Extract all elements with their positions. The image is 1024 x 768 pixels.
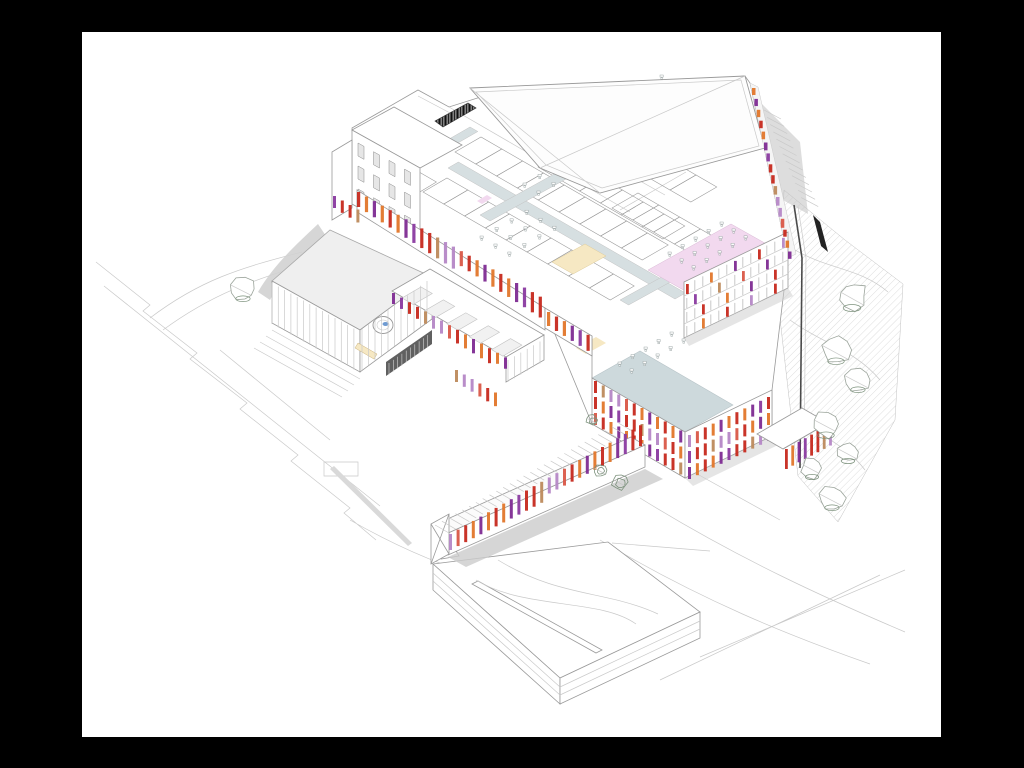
facade-stripe: [718, 283, 721, 293]
chair: [682, 247, 684, 249]
facade-stripe: [449, 534, 452, 550]
facade-mullion: [694, 308, 695, 318]
facade-stripe: [688, 467, 691, 479]
chair: [496, 230, 498, 232]
chair: [657, 357, 659, 359]
facade-stripe: [726, 293, 729, 303]
facade-stripe: [593, 451, 596, 470]
facade-stripe: [664, 422, 667, 434]
desk: [680, 259, 683, 261]
chair: [524, 246, 526, 248]
chair: [693, 269, 695, 271]
desk: [682, 339, 685, 341]
chair: [681, 262, 683, 264]
chair: [525, 230, 527, 232]
facade-stripe: [491, 269, 494, 286]
facade-stripe: [400, 298, 403, 309]
facade-stripe: [456, 330, 459, 344]
desk: [618, 362, 621, 364]
facade-stripe: [672, 458, 675, 470]
facade-stripe: [463, 375, 466, 387]
facade-stripe: [381, 206, 384, 223]
facade-stripe: [472, 521, 475, 538]
facade-stripe: [735, 428, 738, 440]
facade-stripe: [704, 459, 707, 471]
facade-mullion: [694, 322, 695, 332]
facade-stripe: [769, 164, 773, 172]
facade-stripe: [563, 469, 566, 486]
desk: [657, 340, 660, 342]
facade-stripe: [758, 249, 761, 259]
chair: [540, 221, 542, 223]
chair: [511, 222, 513, 224]
facade-stripe: [720, 452, 723, 464]
facade-stripe: [720, 436, 723, 448]
facade-stripe: [444, 242, 447, 263]
chair: [695, 240, 697, 242]
chair: [619, 365, 621, 367]
facade-stripe: [734, 261, 737, 271]
facade-stripe: [648, 413, 651, 425]
facade-stripe: [648, 429, 651, 441]
desk: [670, 332, 673, 334]
chair: [554, 229, 556, 231]
facade-stripe: [656, 433, 659, 445]
desk: [694, 237, 697, 239]
facade-stripe: [751, 405, 754, 417]
facade-stripe: [712, 440, 715, 452]
facade-mullion: [686, 312, 687, 322]
facade-stripe: [783, 230, 787, 237]
facade-stripe: [533, 486, 536, 507]
facade-stripe: [479, 517, 482, 535]
facade-stripe: [764, 143, 768, 151]
facade-mullion: [702, 290, 703, 300]
facade-stripe: [349, 205, 352, 218]
desk: [523, 183, 526, 185]
facade-stripe: [602, 402, 605, 414]
desk: [732, 229, 735, 231]
facade-stripe: [610, 406, 613, 418]
facade-stripe: [743, 408, 746, 420]
facade-stripe: [776, 197, 780, 206]
facade-stripe: [412, 224, 415, 243]
facade-stripe: [579, 330, 582, 346]
facade-stripe: [788, 252, 792, 259]
facade-stripe: [785, 449, 788, 469]
facade-stripe: [356, 210, 359, 223]
chair: [719, 254, 721, 256]
facade-stripe: [726, 307, 729, 317]
desk: [660, 75, 663, 77]
facade-stripe: [686, 284, 689, 294]
drawing-sheet: [0, 0, 1024, 768]
facade-stripe: [735, 444, 738, 456]
chair: [526, 213, 528, 215]
facade-stripe: [460, 251, 463, 266]
facade-stripe: [774, 270, 777, 280]
facade-stripe: [679, 463, 682, 475]
desk: [706, 244, 709, 246]
facade-stripe: [507, 278, 510, 297]
chair: [720, 239, 722, 241]
desk: [643, 361, 646, 363]
facade-stripe: [389, 210, 392, 227]
facade-mullion: [782, 252, 783, 262]
facade-stripe: [786, 241, 790, 248]
chair: [706, 261, 708, 263]
facade-stripe: [436, 238, 439, 259]
facade-stripe: [743, 440, 746, 452]
facade-stripe: [616, 438, 619, 458]
facade-stripe: [609, 443, 612, 462]
facade-stripe: [468, 256, 471, 272]
facade-stripe: [333, 196, 336, 208]
desk: [681, 245, 684, 247]
facade-stripe: [751, 437, 754, 449]
architectural-axonometric-drawing: [0, 0, 1024, 768]
facade-stripe: [743, 424, 746, 436]
facade-stripe: [457, 530, 460, 546]
facade-stripe: [555, 317, 558, 331]
chair: [708, 232, 710, 234]
desk: [552, 182, 555, 184]
facade-mullion: [750, 253, 751, 263]
facade-stripe: [767, 413, 770, 425]
facade-mullion: [750, 267, 751, 277]
facade-mullion: [686, 326, 687, 336]
facade-stripe: [617, 395, 620, 407]
facade-stripe: [781, 219, 785, 228]
facade-stripe: [440, 321, 443, 334]
chair: [670, 349, 672, 351]
facade-stripe: [502, 504, 505, 523]
facade-stripe: [452, 247, 455, 269]
chair: [694, 254, 696, 256]
desk: [510, 219, 513, 221]
chair: [733, 232, 735, 234]
facade-stripe: [774, 284, 777, 294]
facade-stripe: [578, 460, 581, 478]
facade-stripe: [672, 426, 675, 438]
desk: [508, 252, 511, 254]
facade-stripe: [610, 390, 613, 402]
facade-stripe: [510, 499, 513, 518]
facade-stripe: [499, 274, 502, 292]
facade-stripe: [416, 307, 419, 319]
chair: [631, 372, 633, 374]
facade-stripe: [771, 175, 775, 183]
facade-stripe: [420, 228, 423, 248]
facade-stripe: [617, 427, 620, 439]
facade-stripe: [587, 335, 590, 351]
facade-mullion: [686, 298, 687, 308]
desk: [719, 236, 722, 238]
facade-stripe: [798, 442, 801, 463]
facade-stripe: [694, 294, 697, 304]
facade-stripe: [464, 525, 467, 542]
facade-stripe: [428, 233, 431, 253]
facade-stripe: [759, 401, 762, 413]
desk: [553, 226, 556, 228]
chair: [661, 78, 663, 80]
desk: [509, 235, 512, 237]
facade-mullion: [742, 257, 743, 267]
facade-mullion: [774, 256, 775, 266]
chair: [509, 255, 511, 257]
facade-stripe: [754, 99, 758, 106]
facade-stripe: [483, 265, 486, 282]
facade-mullion: [758, 277, 759, 287]
facade-stripe: [539, 297, 542, 318]
facade-stripe: [617, 411, 620, 423]
facade-mullion: [734, 289, 735, 299]
facade-stripe: [757, 110, 761, 117]
desk: [693, 251, 696, 253]
desk: [731, 243, 734, 245]
facade-stripe: [408, 302, 411, 314]
desk: [744, 236, 747, 238]
facade-stripe: [664, 438, 667, 450]
facade-stripe: [710, 272, 713, 282]
facade-stripe: [704, 427, 707, 439]
facade-stripe: [712, 456, 715, 468]
facade-stripe: [472, 339, 475, 353]
chair: [745, 239, 747, 241]
facade-stripe: [720, 420, 723, 432]
facade-stripe: [365, 197, 368, 213]
facade-stripe: [602, 386, 605, 398]
desk: [538, 174, 541, 176]
facade-stripe: [563, 321, 566, 336]
facade-stripe: [778, 208, 782, 217]
facade-stripe: [742, 271, 745, 281]
facade-stripe: [728, 448, 731, 460]
facade-stripe: [480, 344, 483, 359]
desk: [668, 252, 671, 254]
facade-stripe: [712, 424, 715, 436]
desk: [525, 210, 528, 212]
facade-stripe: [455, 370, 458, 382]
facade-stripe: [517, 495, 520, 515]
facade-stripe: [478, 384, 481, 397]
facade-mullion: [742, 299, 743, 309]
chair: [658, 342, 660, 344]
facade-mullion: [694, 280, 695, 290]
desk: [537, 191, 540, 193]
facade-stripe: [392, 293, 395, 304]
desk: [480, 236, 483, 238]
chair: [510, 238, 512, 240]
chair: [538, 194, 540, 196]
desk: [631, 355, 634, 357]
facade-stripe: [594, 381, 597, 393]
facade-mullion: [726, 265, 727, 275]
desk: [718, 251, 721, 253]
facade-stripe: [471, 379, 474, 392]
facade-stripe: [476, 260, 479, 276]
chair: [539, 238, 541, 240]
facade-stripe: [432, 316, 435, 329]
facade-stripe: [750, 295, 753, 305]
facade-stripe: [735, 412, 738, 424]
facade-stripe: [704, 443, 707, 455]
facade-mullion: [718, 297, 719, 307]
desk: [692, 266, 695, 268]
chair: [721, 225, 723, 227]
desk: [669, 346, 672, 348]
facade-stripe: [679, 431, 682, 443]
facade-stripe: [751, 421, 754, 433]
facade-stripe: [515, 283, 518, 302]
chair: [632, 357, 634, 359]
facade-mullion: [774, 242, 775, 252]
facade-stripe: [702, 318, 705, 328]
facade-mullion: [718, 269, 719, 279]
facade-mullion: [726, 279, 727, 289]
facade-stripe: [586, 456, 589, 474]
facade-stripe: [656, 449, 659, 461]
facade-stripe: [688, 435, 691, 447]
facade-mullion: [734, 275, 735, 285]
facade-stripe: [696, 447, 699, 459]
facade-stripe: [357, 192, 360, 207]
facade-stripe: [641, 408, 644, 420]
facade-stripe: [448, 325, 451, 338]
facade-mullion: [758, 263, 759, 273]
facade-stripe: [397, 215, 400, 233]
chair: [553, 185, 555, 187]
desk: [705, 258, 708, 260]
chair: [669, 255, 671, 257]
facade-stripe: [656, 417, 659, 429]
chair: [495, 247, 497, 249]
chair: [683, 342, 685, 344]
desk: [630, 369, 633, 371]
facade-stripe: [373, 201, 376, 217]
chair: [671, 335, 673, 337]
chair: [644, 364, 646, 366]
facade-stripe: [639, 425, 642, 446]
facade-stripe: [571, 326, 574, 341]
facade-stripe: [601, 447, 604, 466]
facade-stripe: [625, 415, 628, 427]
facade-mullion: [742, 285, 743, 295]
desk: [494, 244, 497, 246]
facade-stripe: [488, 348, 491, 363]
chair: [645, 350, 647, 352]
facade-stripe: [610, 422, 613, 434]
facade-stripe: [504, 357, 507, 368]
facade-mullion: [710, 314, 711, 324]
facade-stripe: [631, 430, 634, 451]
facade-stripe: [555, 473, 558, 489]
facade-stripe: [486, 388, 489, 401]
facade-stripe: [766, 260, 769, 270]
facade-stripe: [696, 463, 699, 475]
facade-mullion: [782, 266, 783, 276]
facade-stripe: [464, 334, 467, 348]
facade-stripe: [648, 445, 651, 457]
desk: [524, 227, 527, 229]
facade-stripe: [750, 281, 753, 291]
facade-mullion: [758, 291, 759, 301]
facade-stripe: [495, 508, 498, 527]
facade-stripe: [525, 491, 528, 511]
chair: [524, 186, 526, 188]
facade-stripe: [688, 451, 691, 463]
facade-stripe: [594, 397, 597, 409]
facade-stripe: [547, 312, 550, 326]
desk: [644, 347, 647, 349]
desk: [538, 235, 541, 237]
facade-mullion: [782, 280, 783, 290]
facade-mullion: [766, 288, 767, 298]
facade-stripe: [531, 292, 534, 312]
chair: [481, 239, 483, 241]
facade-stripe: [728, 432, 731, 444]
facade-stripe: [341, 201, 344, 213]
facade-stripe: [523, 288, 526, 308]
facade-stripe: [624, 434, 627, 454]
desk: [495, 227, 498, 229]
chair: [732, 246, 734, 248]
desk: [656, 354, 659, 356]
chair: [539, 177, 541, 179]
facade-mullion: [702, 276, 703, 286]
facade-mullion: [718, 311, 719, 321]
facade-stripe: [759, 121, 763, 129]
facade-stripe: [774, 186, 778, 195]
facade-mullion: [710, 286, 711, 296]
facade-mullion: [766, 274, 767, 284]
facade-stripe: [804, 438, 807, 459]
facade-stripe: [571, 464, 574, 481]
facade-stripe: [540, 482, 543, 503]
facade-mullion: [766, 246, 767, 256]
facade-stripe: [602, 418, 605, 430]
courtyard-pool: [383, 322, 389, 326]
facade-stripe: [696, 431, 699, 443]
facade-stripe: [767, 397, 770, 409]
facade-stripe: [424, 311, 427, 323]
facade-stripe: [759, 417, 762, 429]
facade-stripe: [633, 404, 636, 416]
facade-stripe: [664, 454, 667, 466]
facade-stripe: [548, 477, 551, 493]
desk: [707, 230, 710, 232]
facade-stripe: [672, 442, 675, 454]
facade-stripe: [487, 512, 490, 530]
facade-mullion: [710, 300, 711, 310]
facade-stripe: [810, 435, 813, 456]
facade-stripe: [496, 353, 499, 364]
facade-stripe: [728, 416, 731, 428]
facade-stripe: [791, 445, 794, 465]
desk: [523, 243, 526, 245]
facade-stripe: [762, 132, 766, 140]
chair: [707, 247, 709, 249]
facade-mullion: [734, 303, 735, 313]
facade-stripe: [625, 399, 628, 411]
facade-stripe: [702, 304, 705, 314]
facade-stripe: [766, 153, 770, 161]
desk: [720, 222, 723, 224]
desk: [539, 218, 542, 220]
facade-stripe: [679, 447, 682, 459]
facade-stripe: [404, 219, 407, 238]
facade-stripe: [494, 393, 497, 407]
